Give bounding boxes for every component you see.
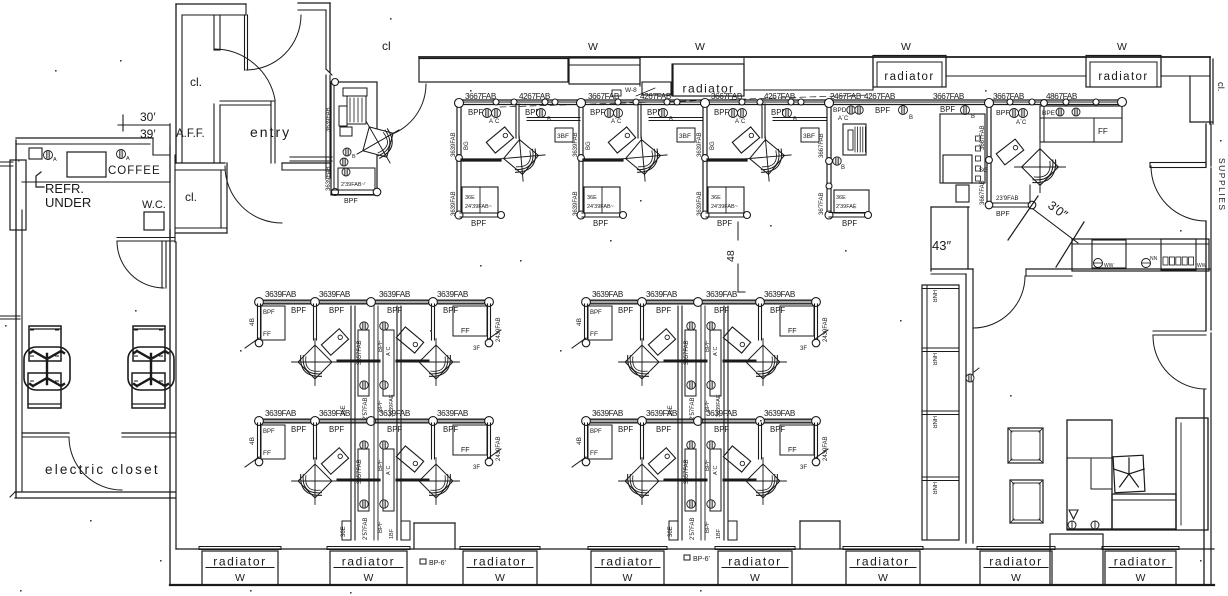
svg-text:BPF: BPF [875,106,890,115]
svg-text:3639FAB: 3639FAB [764,409,796,418]
svg-text:W-8: W-8 [625,87,637,94]
svg-text:BPF: BPF [705,521,711,533]
svg-text:BG: BG [710,141,716,150]
svg-text:24′39FAB~: 24′39FAB~ [465,204,492,210]
svg-text:W: W [1011,572,1021,584]
svg-text:BPF: BPF [656,425,671,434]
svg-text:BPF: BPF [705,340,711,352]
svg-text:BPF: BPF [593,219,608,228]
svg-text:WW: WW [1104,263,1114,269]
svg-text:3639FAB: 3639FAB [697,132,703,157]
svg-text:HNR: HNR [931,416,937,429]
svg-text:3BF: 3BF [679,133,691,140]
svg-text:A: A [53,157,57,163]
svg-text:43″: 43″ [932,238,951,253]
svg-text:W: W [695,41,705,53]
svg-text:radiator: radiator [884,71,934,83]
svg-text:BPF: BPF [940,105,955,114]
svg-text:3667FAB: 3667FAB [711,92,743,101]
svg-text:BPF: BPF [263,429,275,435]
svg-text:BPF: BPF [705,459,711,471]
svg-text:BP-6′: BP-6′ [693,556,711,563]
svg-text:HNR: HNR [931,482,937,495]
svg-text:BPF: BPF [291,425,306,434]
svg-text:3639FAB: 3639FAB [592,290,624,299]
svg-text:BPF: BPF [387,425,402,434]
svg-text:2′39FAB~̇̕: 2′39FAB~̇̕ [341,182,366,188]
svg-text:BP-6′: BP-6′ [429,560,447,567]
svg-text:W: W [1136,572,1146,584]
svg-text:cl.: cl. [190,75,202,89]
svg-text:cl: cl [382,39,391,53]
svg-text:3667FAB: 3667FAB [588,92,620,101]
svg-text:3F: 3F [800,465,807,471]
svg-text:3657FAB: 3657FAB [357,340,363,365]
svg-text:W: W [588,41,598,53]
svg-text:W: W [364,572,374,584]
svg-text:A: A [126,156,130,162]
svg-text:BPF: BPF [443,306,458,315]
svg-text:3639FAB: 3639FAB [646,290,678,299]
svg-text:24′39FAB~: 24′39FAB~ [711,204,738,210]
svg-text:W.C.: W.C. [142,199,166,211]
svg-text:BPF: BPF [714,425,729,434]
svg-text:3639FAB: 3639FAB [592,409,624,418]
svg-text:3639FAB: 3639FAB [319,290,351,299]
svg-text:UNDER: UNDER [45,195,91,210]
svg-text:B: B [909,115,913,121]
svg-text:36′7FAB: 36′7FAB [819,193,825,215]
svg-text:3639FAB: 3639FAB [326,107,332,132]
svg-text:BPF: BPF [705,400,711,412]
svg-text:3639FAĖ: 3639FAĖ [388,394,395,417]
svg-text:48: 48 [725,250,737,262]
svg-text:A`C: A`C [611,119,622,125]
svg-text:BPF: BPF [590,108,605,117]
svg-text:A`C: A`C [489,119,500,125]
svg-text:A`C: A`C [713,466,719,476]
svg-text:30′: 30′ [140,110,156,124]
svg-text:4867FAB: 4867FAB [1046,92,1078,101]
svg-text:BPF: BPF [717,219,732,228]
svg-text:FF: FF [788,447,797,454]
svg-text:HNR: HNR [931,353,937,366]
svg-text:3667FAB: 3667FAB [980,125,986,150]
svg-text:BPF: BPF [714,306,729,315]
svg-text:BPF: BPF [329,306,344,315]
svg-text:radiator: radiator [728,555,782,569]
svg-text:3657FAB: 3657FAB [357,459,363,484]
svg-text:23′9FAB: 23′9FAB [996,196,1018,202]
svg-text:3667FAB: 3667FAB [465,92,497,101]
svg-text:4B: 4B [576,318,583,326]
svg-text:2′57FAB: 2′57FAB [363,398,369,420]
svg-text:1BF: 1BF [716,528,722,539]
svg-text:3639FAB: 3639FAB [764,290,796,299]
svg-text:BG: BG [586,141,592,150]
svg-text:A`C: A`C [386,466,392,476]
svg-text:HNR: HNR [931,290,937,303]
svg-text:2′39FAẸ̇: 2′39FAẸ̇ [836,203,857,210]
svg-text:2′57FAB: 2′57FAB [363,518,369,540]
svg-text:radiator: radiator [989,555,1043,569]
svg-text:B: B [352,154,356,160]
svg-text:entry: entry [250,124,291,140]
svg-text:36E: 36E [836,195,846,201]
svg-text:BPF: BPF [842,219,857,228]
svg-text:radiator: radiator [1114,555,1168,569]
svg-text:4B: 4B [576,437,583,445]
svg-text:BPF: BPF [770,306,785,315]
svg-text:3639FAB: 3639FAB [379,290,411,299]
svg-text:3657FAB: 3657FAB [684,340,690,365]
svg-text:4267FAB: 4267FAB [864,92,896,101]
svg-text:36E: 36E [711,195,721,201]
svg-text:FF: FF [263,331,271,338]
svg-text:3639FAB: 3639FAB [573,191,579,216]
svg-text:BPF: BPF [996,110,1010,117]
svg-text:SUPPLIES: SUPPLIES [1217,158,1227,212]
svg-text:BPF: BPF [714,108,729,117]
svg-text:WW: WW [1197,263,1207,269]
svg-text:radiator: radiator [856,555,910,569]
svg-text:radiator: radiator [473,555,527,569]
svg-text:cl.: cl. [1215,82,1226,92]
svg-text:radiator: radiator [601,555,655,569]
svg-text:3639FAB: 3639FAB [265,409,297,418]
svg-text:BPF: BPF [590,429,602,435]
svg-text:3639FAB: 3639FAB [451,132,457,157]
svg-text:B: B [841,165,845,171]
svg-text:radiator: radiator [1098,71,1148,83]
svg-text:A`C: A`C [838,116,849,122]
svg-text:BPF: BPF [770,425,785,434]
svg-text:FF: FF [461,447,470,454]
svg-text:BPF: BPF [291,306,306,315]
svg-text:2′57FAB: 2′57FAB [690,518,696,540]
svg-text:cl.: cl. [185,190,197,204]
svg-text:BPF: BPF [378,521,384,533]
svg-text:B: B [971,114,975,120]
svg-text:3639FAĖ: 3639FAĖ [715,394,722,417]
svg-text:BPF: BPF [378,459,384,471]
svg-text:W: W [878,572,888,584]
svg-text:A.F.F.: A.F.F. [176,128,205,140]
svg-text:3639FAB: 3639FAB [573,132,579,157]
svg-text:3F: 3F [473,346,480,352]
svg-text:BPF: BPF [329,425,344,434]
svg-text:BPF: BPF [443,425,458,434]
svg-text:3639FAB: 3639FAB [697,191,703,216]
svg-text:36E: 36E [341,405,347,416]
svg-text:radiator: radiator [213,555,267,569]
svg-text:BPD: BPD [833,107,847,114]
svg-text:3639FAB: 3639FAB [437,409,469,418]
svg-text:3639FAB: 3639FAB [326,166,332,191]
svg-text:3639FAB: 3639FAB [437,290,469,299]
svg-text:3639FAB: 3639FAB [451,191,457,216]
svg-text:radiator: radiator [342,555,396,569]
svg-text:FF: FF [1098,127,1108,136]
svg-text:1BF: 1BF [389,528,395,539]
svg-text:36E: 36E [668,405,674,416]
svg-text:NN: NN [1150,256,1158,262]
svg-text:2467FAB: 2467FAB [830,92,862,101]
svg-text:COFFEE: COFFEE [108,165,161,177]
svg-text:3639FAB: 3639FAB [265,290,297,299]
svg-text:BPF: BPF [656,306,671,315]
svg-text:FF: FF [590,450,598,457]
svg-text:3657FAB: 3657FAB [684,459,690,484]
svg-text:FF: FF [461,328,470,335]
svg-text:3BF: 3BF [557,133,569,140]
svg-text:BPF: BPF [378,400,384,412]
svg-text:BPF: BPF [996,211,1010,218]
svg-text:2′57FAB: 2′57FAB [690,398,696,420]
svg-text:3F: 3F [473,465,480,471]
svg-text:4B: 4B [249,318,256,326]
svg-text:A`C: A`C [735,119,746,125]
svg-text:electric closet: electric closet [45,462,160,477]
svg-text:3BF: 3BF [803,133,815,140]
svg-text:W: W [623,572,633,584]
svg-text:W: W [1117,41,1127,53]
svg-text:BPF: BPF [590,310,602,316]
svg-text:A`C: A`C [1016,120,1027,126]
svg-text:FF: FF [590,331,598,338]
svg-text:W: W [750,572,760,584]
svg-text:BPF: BPF [468,108,483,117]
svg-text:BG: BG [464,141,470,150]
svg-text:3667FAB: 3667FAB [933,92,965,101]
svg-text:3F: 3F [800,346,807,352]
svg-text:3639FAB: 3639FAB [706,290,738,299]
svg-text:SG: SG [979,168,988,174]
svg-text:3667FAB: 3667FAB [980,180,986,205]
svg-text:BPF: BPF [471,219,486,228]
svg-text:4B: 4B [249,437,256,445]
svg-text:BPF: BPF [387,306,402,315]
svg-text:FF: FF [788,328,797,335]
svg-text:BPF: BPF [618,425,633,434]
svg-text:36E: 36E [465,195,475,201]
svg-text:24′39FAB~: 24′39FAB~ [587,204,614,210]
svg-text:BPF: BPF [378,340,384,352]
svg-text:39′: 39′ [140,127,156,141]
svg-text:REFR.: REFR. [45,181,84,196]
svg-text:36E: 36E [587,195,597,201]
svg-text:3667FAB: 3667FAB [819,133,825,158]
svg-text:A`C: A`C [386,347,392,357]
svg-text:W: W [495,572,505,584]
svg-text:A`C: A`C [713,347,719,357]
svg-text:W: W [901,41,911,53]
svg-text:BPF: BPF [618,306,633,315]
svg-text:BPF: BPF [263,310,275,316]
svg-text:FF: FF [263,450,271,457]
svg-text:W: W [235,572,245,584]
svg-text:BPF: BPF [344,198,358,205]
